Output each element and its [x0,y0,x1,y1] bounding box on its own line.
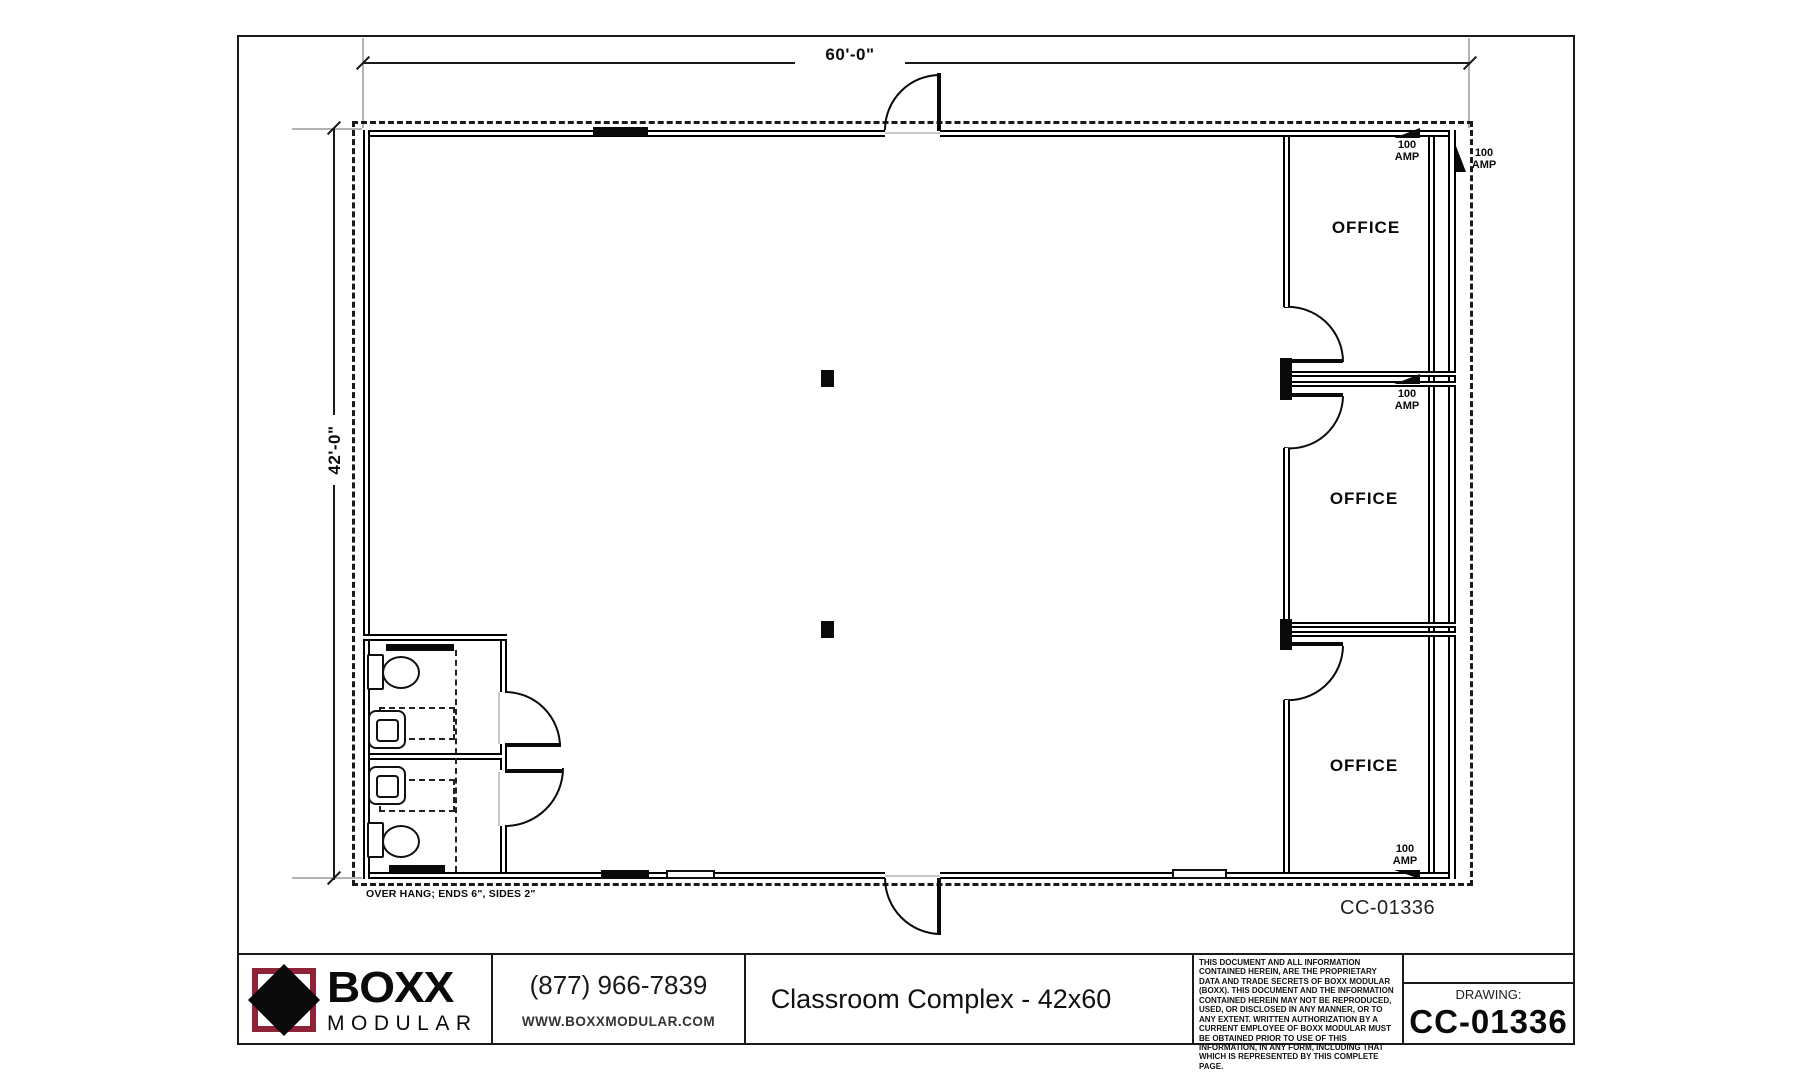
restroom-counter-strip [386,644,454,651]
office-partition-2 [1290,631,1456,637]
title-block: BOXX MODULAR (877) 966-7839 WWW.BOXXMODU… [237,953,1575,1045]
restroom-right-wall [500,641,507,692]
brand-subname: MODULAR [327,1013,478,1034]
office-front-wall [1283,137,1290,307]
door-arc-restroom-2 [505,768,563,826]
legal-cell: THIS DOCUMENT AND ALL INFORMATION CONTAI… [1192,955,1402,1043]
drawing-number-cell: DRAWING: CC-01336 [1402,955,1573,1043]
partition-end-post [1280,619,1292,650]
office-partition-1 [1290,371,1456,377]
door-arc-office-1 [1284,307,1343,362]
office-front-wall [1283,700,1290,872]
door-leaf-office-1 [1284,359,1343,363]
amp-label-4: 100 AMP [1388,844,1422,867]
overhang-note: OVER HANG; ENDS 6", SIDES 2" [366,888,536,900]
drawing-label: DRAWING: [1456,987,1522,1002]
drawing-title: Classroom Complex - 42x60 [771,984,1112,1015]
office-front-wall [1283,448,1290,622]
door-leaf-restroom-1 [505,743,561,747]
drawing-sheet: 60'-0" 42'-0" [0,0,1812,1080]
title-cell: Classroom Complex - 42x60 [744,955,1192,1043]
door-leaf-office-2 [1284,393,1343,397]
door-leaf-top-entry [937,73,941,131]
amp-label-3: 100 AMP [1390,389,1424,412]
door-arc-office-2 [1284,396,1343,448]
restroom-right-wall [500,826,507,872]
plan-number: CC-01336 [1340,897,1435,920]
office-2-label: OFFICE [1326,489,1402,509]
brand-text: BOXX MODULAR [327,964,478,1034]
logo-diamond-icon [248,964,320,1036]
door-arc-top-entry [885,75,940,130]
office-1-label: OFFICE [1328,218,1404,238]
amp-label-1: 100 AMP [1390,140,1424,163]
drawing-cell-blank [1404,955,1573,984]
door-threshold [885,132,940,134]
office-partition-1 [1290,381,1456,387]
door-arc-office-3 [1284,646,1343,700]
amp-label-2: 100 AMP [1467,148,1501,171]
sink-basin [376,775,399,798]
brand-name: BOXX [327,965,478,1009]
restroom-counter-strip [389,865,445,873]
restroom-divider-wall [370,753,502,760]
clearance-dashed-line [455,650,457,872]
door-arc-restroom-1 [505,692,560,747]
office-partition-2 [1290,622,1456,628]
door-leaf-office-3 [1284,642,1343,646]
door-ghost-line [498,692,500,744]
door-ghost-line [498,772,500,826]
boxx-logo-icon [252,968,316,1032]
toilet-bowl [382,656,420,689]
door-leaf-bottom-entry [937,878,941,935]
office-3-label: OFFICE [1326,756,1402,776]
logo-cell: BOXX MODULAR [239,955,491,1043]
restroom-top-wall [363,634,507,641]
website-url: WWW.BOXXMODULAR.COM [522,1014,715,1029]
door-threshold [885,875,940,877]
drawing-number: CC-01336 [1409,1003,1567,1041]
phone-number: (877) 966-7839 [530,970,708,1001]
drawing-cell-main: DRAWING: CC-01336 [1404,984,1573,1043]
legal-text: THIS DOCUMENT AND ALL INFORMATION CONTAI… [1199,958,1394,1071]
door-arc-bottom-entry [885,878,940,934]
door-leaf-restroom-2 [505,769,563,773]
sink-basin [376,719,399,742]
toilet-bowl [382,825,420,858]
door-swing-arcs [0,0,1812,1080]
contact-cell: (877) 966-7839 WWW.BOXXMODULAR.COM [491,955,744,1043]
partition-end-post [1280,358,1292,400]
